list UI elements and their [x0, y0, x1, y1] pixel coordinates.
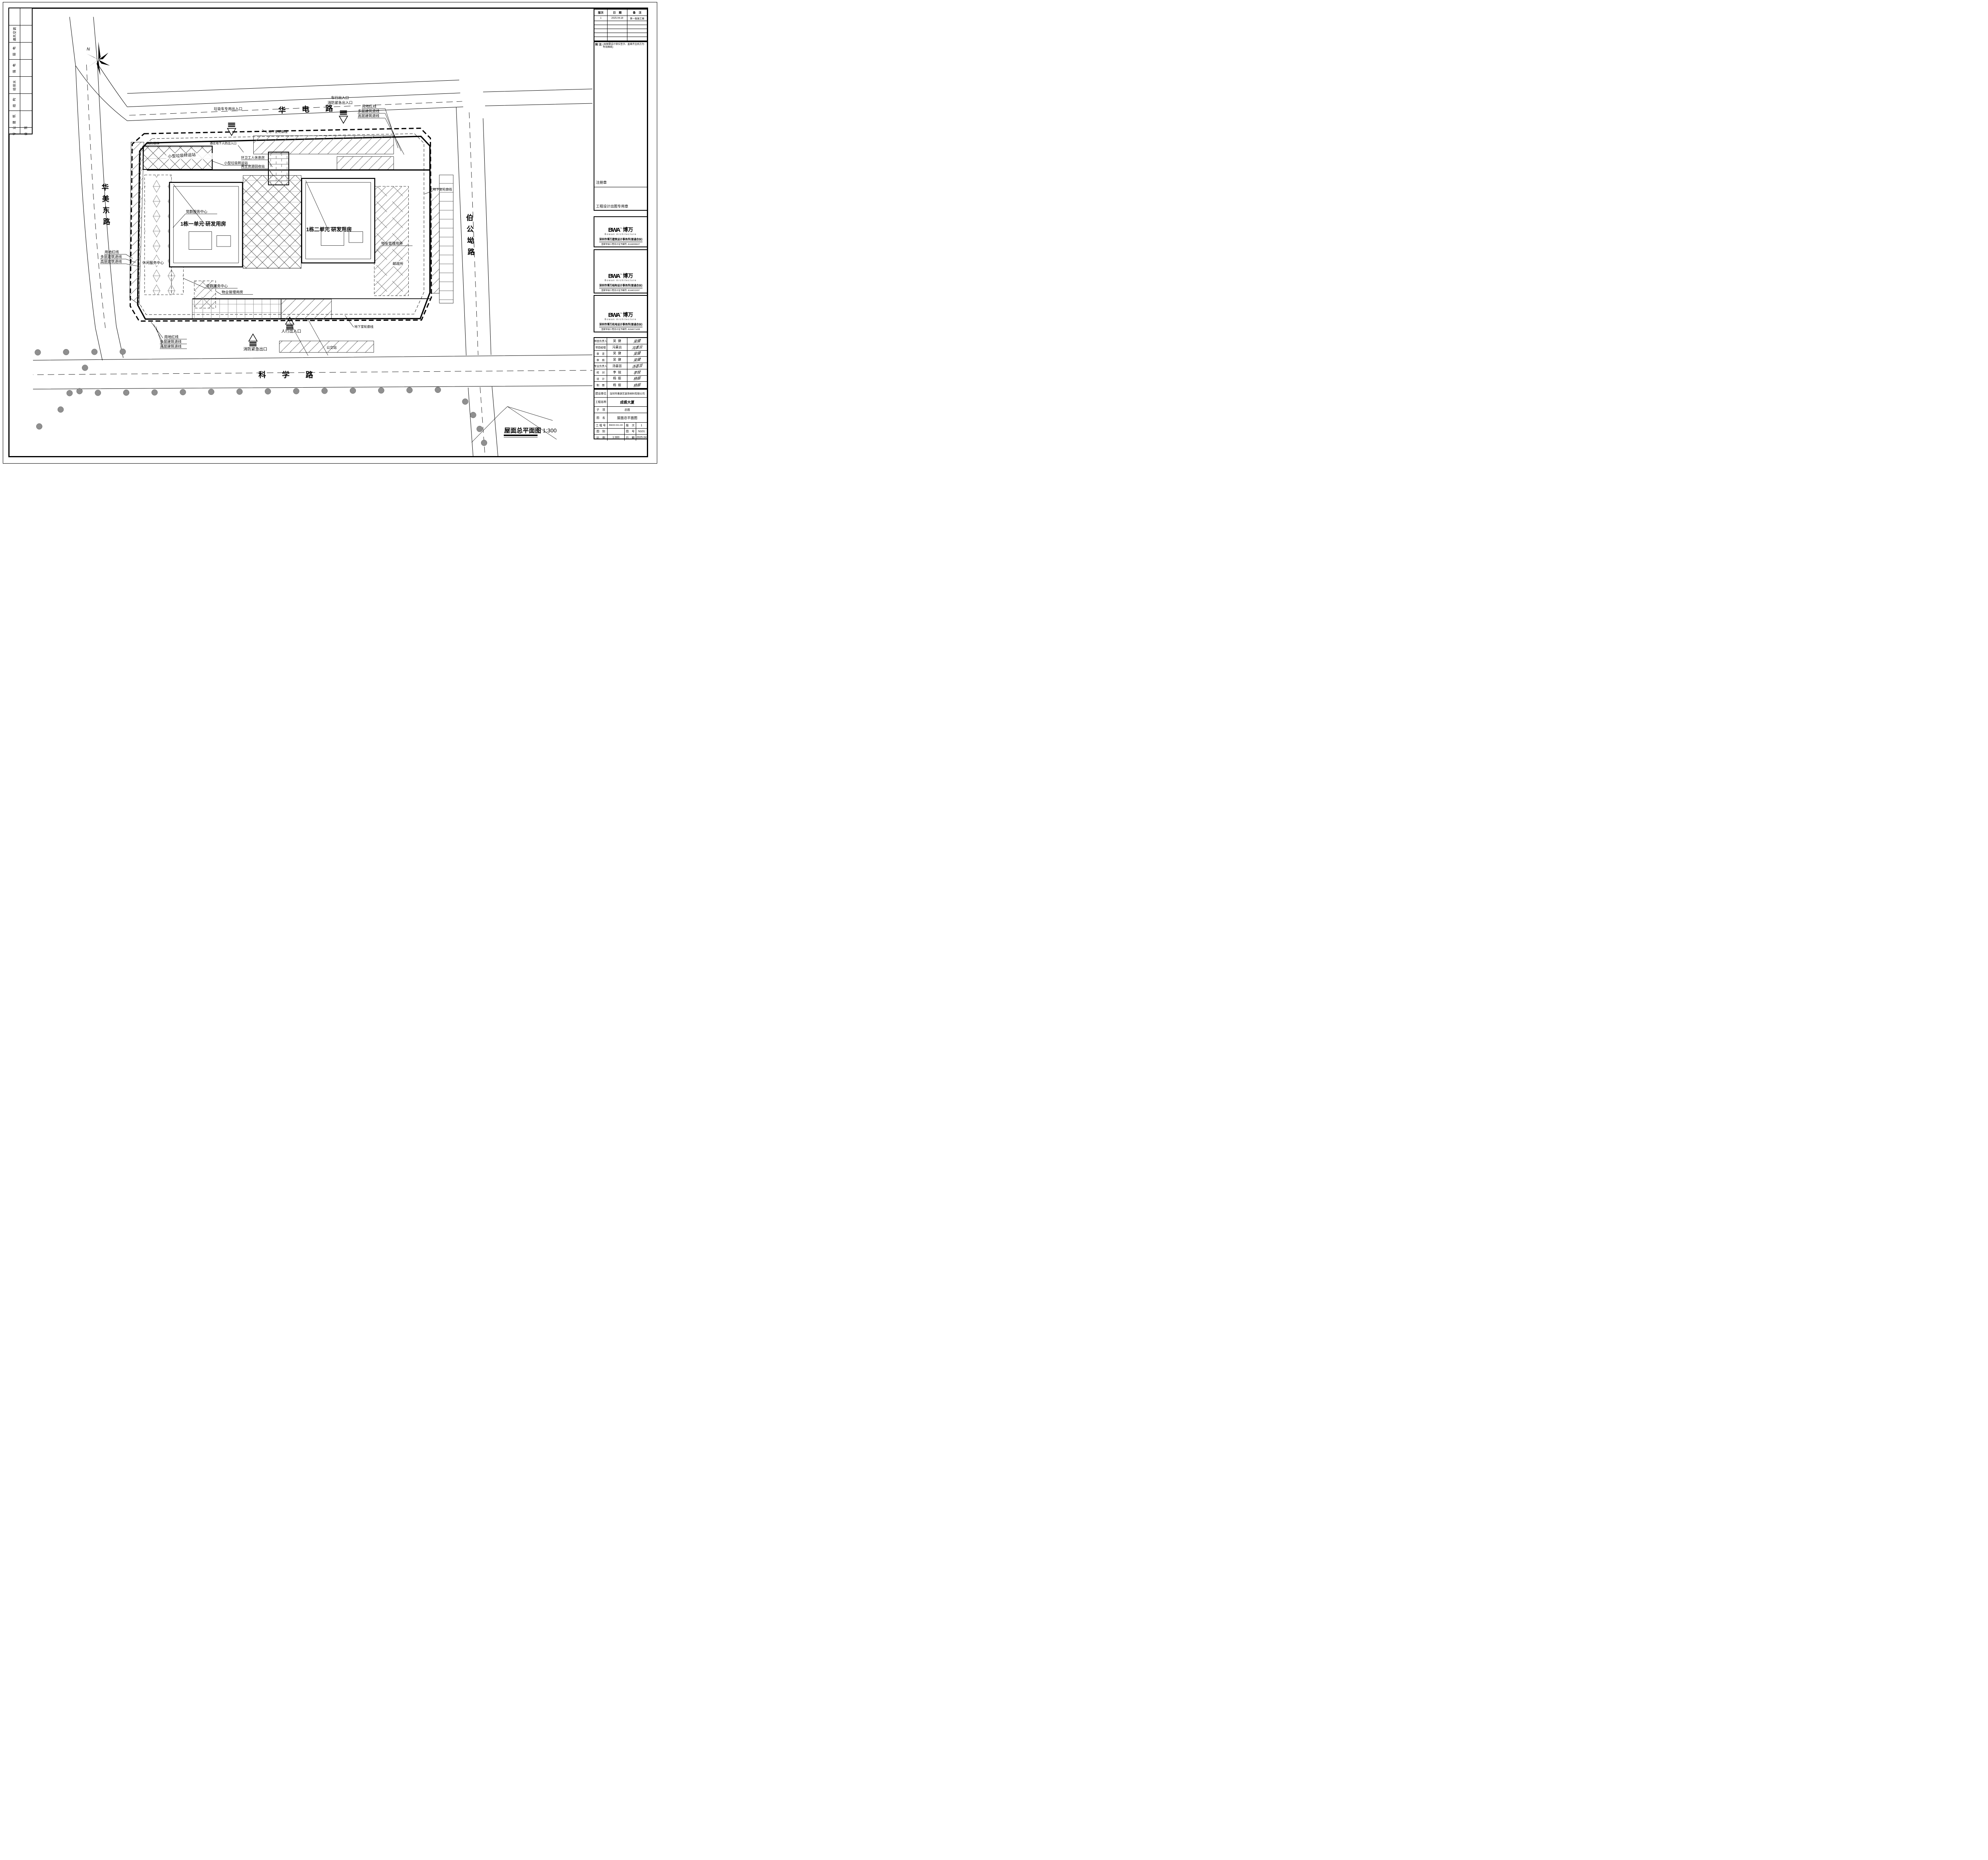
- sheetno-value: N101: [636, 429, 647, 434]
- svg-text:垃圾车专用出入口: 垃圾车专用出入口: [214, 107, 243, 111]
- countersign-strip: 通风空调 弱 电 强 电 给排水 结 构 建 筑 专 业 会 签: [8, 8, 33, 134]
- role: 专业负责人: [594, 363, 607, 369]
- svg-text:党群服务中心: 党群服务中心: [186, 210, 208, 214]
- subitem-value: 总图: [608, 407, 647, 413]
- street-trees: [33, 349, 487, 446]
- svg-text:物业管理用房: 物业管理用房: [381, 241, 403, 246]
- svg-text:华: 华: [102, 183, 109, 192]
- issue-stamp-label: 工程设计出图专用章: [596, 204, 628, 209]
- rev-row-note: 第一版施工图: [627, 16, 647, 21]
- date-label: 日 期: [625, 435, 636, 441]
- svg-text:用地红线: 用地红线: [164, 335, 179, 339]
- discipline-plumbing: 给排水: [12, 80, 17, 91]
- discipline-power: 强 电: [12, 63, 17, 73]
- firm-architecture: BWATM博万 Bowan Architecture 深圳市博万建筑设计事务所(…: [594, 216, 648, 247]
- jobno-value: BW22-011-03: [608, 423, 625, 428]
- role: 审 定: [594, 351, 607, 357]
- firm-cert: 国家甲级工程设计证书编号: A144006627: [602, 242, 640, 246]
- svg-text:路: 路: [103, 217, 111, 226]
- personnel-table: 项目负责人吴 健吴健 项目经理冯素云冯素云 审 定吴 健吴健 审 核吴 健吴健 …: [594, 337, 648, 389]
- road-north-label: 华 电 路: [278, 103, 340, 115]
- client-value: 深圳市惠源艺装饰材料有限公司: [608, 390, 647, 397]
- signature: 冯素云: [627, 344, 647, 351]
- svg-text:地下室轮廓线: 地下室轮廓线: [354, 325, 373, 329]
- rev-row-version: 1: [594, 16, 608, 21]
- firm-cert: 国家甲级工程设计证书编号: A144011697: [602, 288, 640, 292]
- firm-cert: 国家甲级工程设计证书编号: A244071438: [602, 327, 640, 331]
- notes-label: 附 注:: [595, 43, 602, 47]
- signature: 吴健: [627, 338, 647, 344]
- svg-text:休闲服务中心: 休闲服务中心: [142, 260, 164, 265]
- svg-text:环卫工人休息房: 环卫工人休息房: [241, 156, 265, 160]
- svg-text:伯: 伯: [466, 214, 473, 222]
- site-plan-canvas: N 华 电 路 科 学 路 华 美 东 路 伯 公 坳 路 1栋一单元 研发用房…: [33, 8, 593, 457]
- svg-text:用地红线: 用地红线: [362, 104, 377, 109]
- signature: 杨振: [627, 382, 647, 388]
- svg-text:公交站: 公交站: [326, 346, 337, 349]
- bwa-logo: BWATM博万: [608, 273, 633, 279]
- firm-structure: BWATM博万 Bowan Architecture 深圳市博万结构设计事务所(…: [594, 249, 648, 293]
- svg-text:多层建筑退线: 多层建筑退线: [358, 109, 379, 113]
- role: 项目负责人: [594, 338, 607, 344]
- signature: 吴健: [627, 357, 647, 363]
- version-value: 1: [636, 423, 647, 428]
- drawing-title-scale: 1:300: [543, 427, 557, 434]
- drawing-sheet: 通风空调 弱 电 强 电 给排水 结 构 建 筑 专 业 会 签: [0, 0, 658, 465]
- discipline-hvac: 通风空调: [12, 27, 17, 41]
- name: 李 锐: [607, 369, 627, 376]
- revision-table: 版次 日 期 备 注 1 2025.04.18 第一版施工图: [594, 9, 648, 41]
- firm-mep: BWATM博万 Bowan Architecture 深圳市博万机电设计事务所(…: [594, 295, 648, 332]
- name: 汤荟芸: [607, 363, 627, 369]
- name: 吴 健: [607, 338, 627, 344]
- building-1-unit-2-label: 1栋二单元 研发用房: [306, 226, 352, 232]
- building-1-unit-1-label: 1栋一单元 研发用房: [181, 221, 226, 227]
- drawing-name-value: 屋面总平面图: [608, 413, 647, 422]
- discipline-structure: 结 构: [12, 97, 17, 107]
- road-south-label: 科 学 路: [258, 370, 320, 379]
- tower-2: [302, 179, 375, 263]
- svg-text:物业管理用房: 物业管理用房: [222, 290, 243, 294]
- drawing-name-label: 图 名: [594, 413, 608, 422]
- svg-text:多层建筑退线: 多层建筑退线: [101, 254, 122, 259]
- fire-exit-marker: [249, 334, 257, 346]
- signature: 杨振: [627, 376, 647, 382]
- stamp-divider: [594, 187, 647, 187]
- role: 校 对: [594, 369, 607, 376]
- version-label: 版 次: [625, 423, 636, 428]
- firm-name: 深圳市博万建筑设计事务所(普通合伙): [599, 237, 643, 242]
- role: 设 计: [594, 376, 607, 382]
- countersign-header: 会 签: [24, 126, 28, 135]
- bwa-logo-subtitle: Bowan Architecture: [605, 280, 637, 282]
- vehicle-entrance-marker: [339, 111, 348, 123]
- signature: 汤荟芸: [627, 363, 647, 369]
- discipline-architecture: 建 筑: [12, 114, 17, 124]
- role: 制 图: [594, 382, 607, 388]
- subitem-label: 子 项: [594, 407, 608, 413]
- svg-text:路: 路: [468, 248, 475, 256]
- discipline-elv: 弱 电: [12, 46, 17, 56]
- signature: 吴健: [627, 351, 647, 357]
- project-info-table: 建设单位深圳市惠源艺装饰材料有限公司 工程名称成裘大厦 子 项总图 图 名屋面总…: [594, 389, 648, 439]
- svg-text:人行出入口: 人行出入口: [282, 328, 301, 334]
- discipline-header: 专 业: [12, 126, 17, 135]
- svg-text:公: 公: [467, 225, 474, 233]
- svg-text:东: 东: [103, 206, 110, 214]
- notes-text: (本图需设计单位签字、盖章齐全后方为有效图纸): [603, 43, 646, 49]
- firm-name: 深圳市博万机电设计事务所(普通合伙): [599, 322, 643, 327]
- rev-header-note: 备 注: [627, 10, 647, 16]
- name: 杨 振: [607, 382, 627, 388]
- project-value: 成裘大厦: [608, 398, 647, 406]
- category-value: [608, 429, 625, 434]
- role: 项目经理: [594, 344, 607, 351]
- name: 吴 健: [607, 357, 627, 363]
- rev-header-version: 版次: [594, 10, 608, 16]
- rev-row-date: 2025.04.18: [608, 16, 627, 21]
- client-label: 建设单位: [594, 390, 608, 397]
- garbage-entrance-marker: [227, 123, 236, 136]
- svg-text:车行出入口: 车行出入口: [331, 95, 349, 100]
- firm-name: 深圳市博万结构设计事务所(普通合伙): [599, 283, 643, 288]
- svg-text:消防楼梯: 消防楼梯: [147, 141, 159, 145]
- north-label: N: [87, 47, 90, 52]
- svg-text:消防紧急出口: 消防紧急出口: [243, 346, 267, 351]
- svg-text:高层建筑退线: 高层建筑退线: [160, 344, 182, 349]
- svg-text:邮政所: 邮政所: [393, 262, 404, 266]
- svg-text:美: 美: [102, 194, 109, 203]
- jobno-label: 工 程 号: [594, 423, 608, 428]
- name: 冯素云: [607, 344, 627, 351]
- project-label: 工程名称: [594, 398, 608, 406]
- svg-text:消防紧急出入口: 消防紧急出入口: [328, 100, 353, 105]
- scale-label: 比 例: [594, 435, 608, 441]
- svg-text:用地红线: 用地红线: [105, 250, 119, 254]
- svg-text:高层建筑退线: 高层建筑退线: [358, 114, 379, 118]
- signature: 李锐: [627, 369, 647, 376]
- svg-text:坳: 坳: [467, 236, 474, 245]
- north-arrow: N: [87, 42, 110, 76]
- svg-text:通往地下人防出入口: 通往地下人防出入口: [210, 141, 237, 145]
- bwa-logo: BWATM博万: [608, 227, 633, 233]
- name: 杨 振: [607, 376, 627, 382]
- road-west-label: 华 美 东 路: [102, 183, 111, 226]
- svg-text:地下室轮廓线: 地下室轮廓线: [268, 130, 287, 134]
- svg-text:高层建筑退线: 高层建筑退线: [101, 259, 122, 264]
- drawing-title-block: 屋面总平面图 1:300: [504, 427, 557, 437]
- name: 吴 健: [607, 351, 627, 357]
- role: 审 核: [594, 357, 607, 363]
- date-value: 2025.04: [636, 435, 647, 441]
- svg-text:多层建筑退线: 多层建筑退线: [160, 340, 182, 344]
- category-label: 图 别: [594, 429, 608, 434]
- sheetno-label: 图 号: [625, 429, 636, 434]
- svg-text:再生资源回收站: 再生资源回收站: [241, 165, 265, 169]
- svg-text:党群服务中心: 党群服务中心: [206, 284, 228, 288]
- bwa-logo-subtitle: Bowan Architecture: [605, 318, 637, 321]
- registration-stamp-label: 注册章: [596, 180, 607, 185]
- bwa-logo: BWATM博万: [608, 312, 633, 318]
- scale-value: 1:300: [608, 435, 625, 441]
- svg-text:地下室轮廓线: 地下室轮廓线: [433, 187, 452, 191]
- rev-header-date: 日 期: [608, 10, 627, 16]
- drawing-title: 屋面总平面图: [504, 427, 541, 434]
- bwa-logo-subtitle: Bowan Architecture: [605, 233, 637, 236]
- notes-and-stamp-box: 附 注:(本图需设计单位签字、盖章齐全后方为有效图纸) 注册章 工程设计出图专用…: [594, 41, 648, 211]
